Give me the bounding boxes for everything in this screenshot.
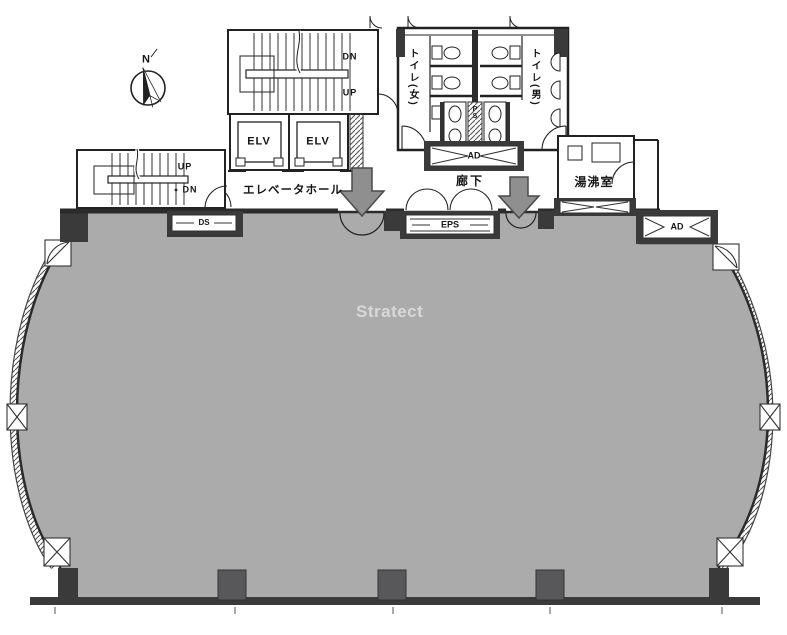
ad-right-label: AD	[671, 223, 684, 232]
floor-plan: N DN UP UP DN ELV ELV エレベータホール トイレ(女) トイ…	[0, 0, 787, 635]
corridor-label: 廊下	[456, 175, 484, 187]
corridor-doors	[406, 189, 492, 210]
left-staircase	[77, 149, 227, 208]
compass-north-label: N	[142, 55, 150, 66]
stairs-top-dn-label: DN	[343, 53, 358, 62]
toilet-women-label: トイレ(女)	[407, 48, 417, 107]
elevator-2-label: ELV	[306, 137, 330, 148]
stairs-left-dn-label: DN	[183, 186, 198, 195]
ps-shaft-label: PS	[472, 106, 479, 120]
floor-area	[17, 212, 768, 600]
watermark: Stratect	[356, 302, 423, 322]
stairs-left-up-label: UP	[178, 163, 193, 172]
ds-left-label: DS	[198, 219, 209, 227]
toilet-men-label: トイレ(男)	[529, 48, 539, 107]
stairs-top-up-label: UP	[343, 89, 358, 98]
elevator-hall-label: エレベータホール	[243, 185, 343, 197]
top-staircase	[228, 30, 398, 114]
ad-toilet-label: AD	[468, 152, 481, 161]
entrance-arrow-icon	[340, 168, 384, 216]
elevator-1-label: ELV	[247, 137, 271, 148]
kitchenette-label: 湯沸室	[574, 176, 613, 188]
eps-label: EPS	[441, 221, 459, 230]
